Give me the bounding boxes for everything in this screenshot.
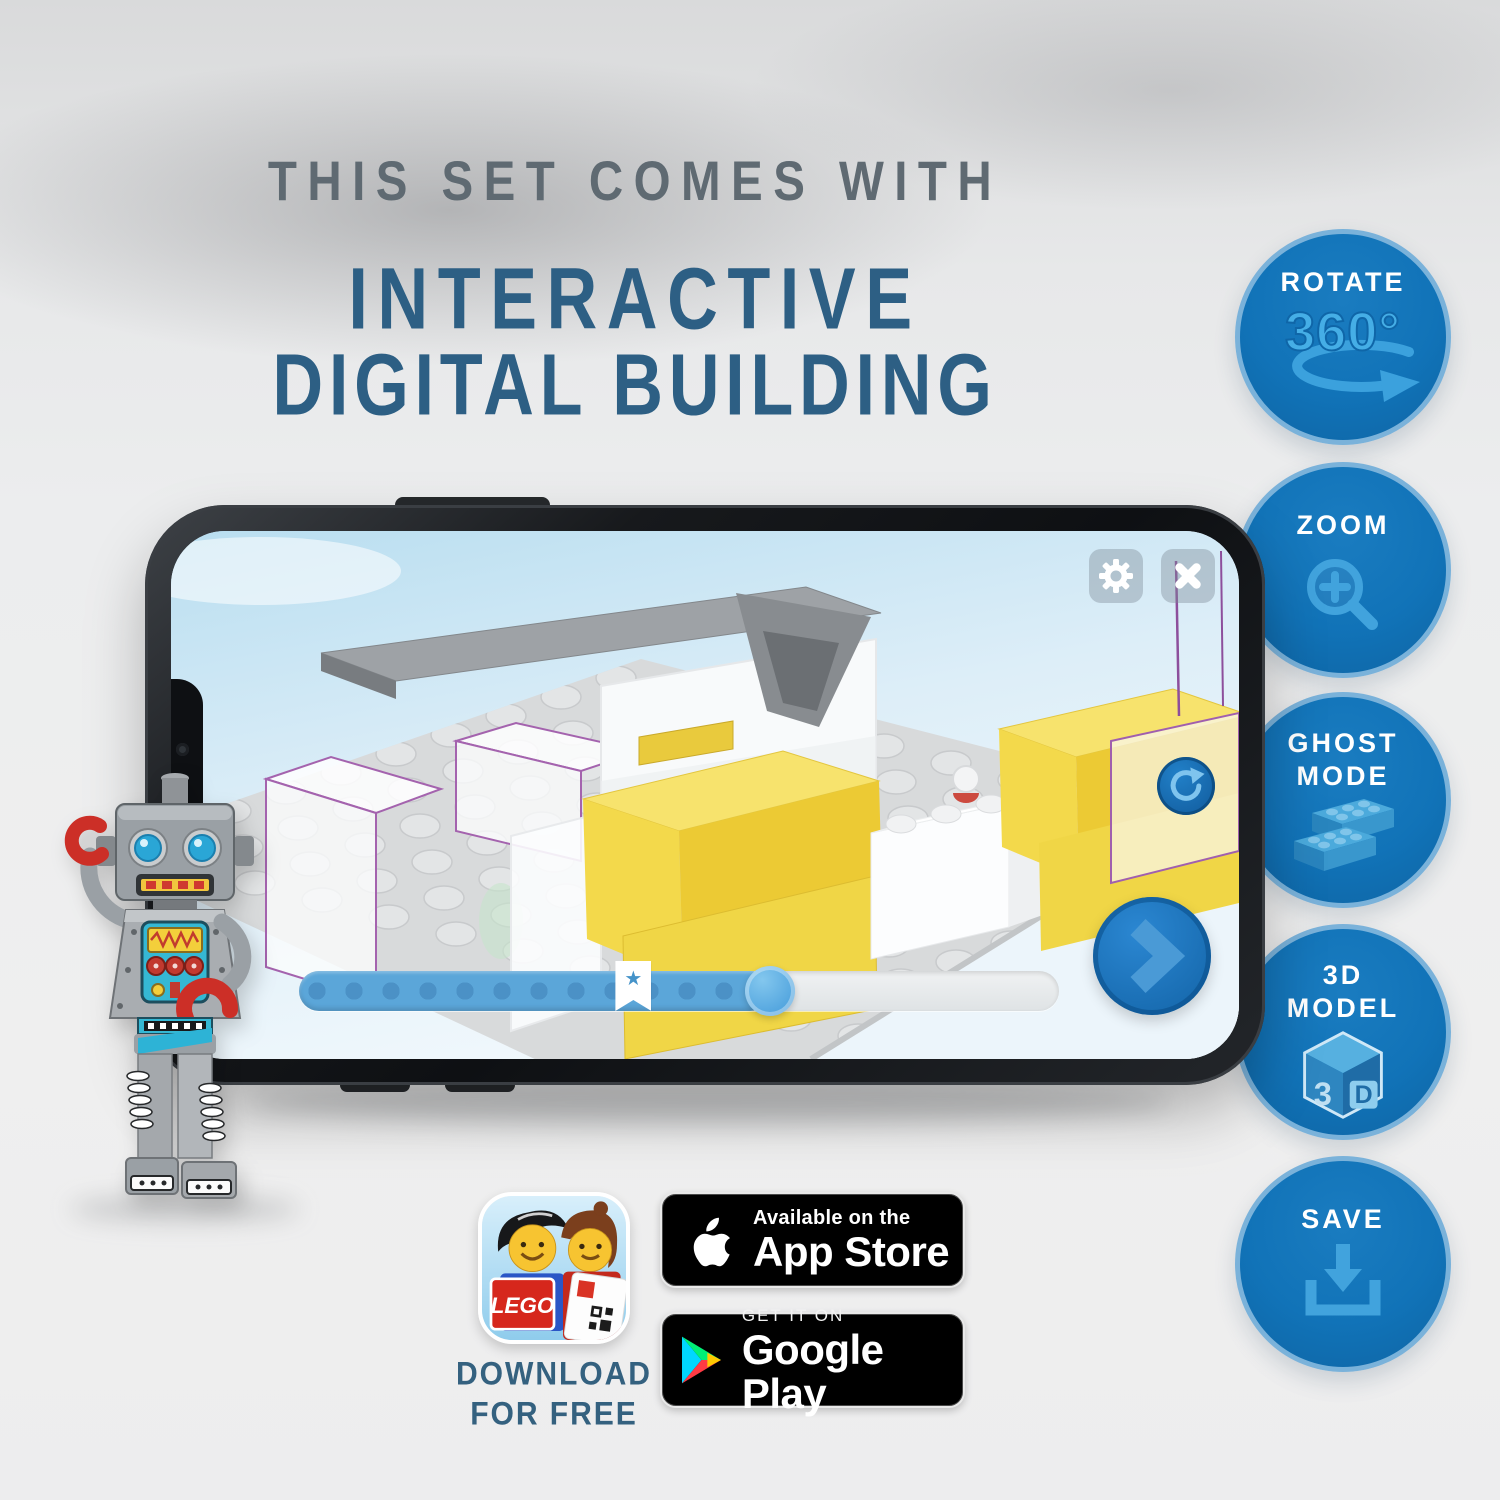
settings-button[interactable]: [1089, 549, 1143, 603]
lego-app-icon[interactable]: LEGO: [478, 1192, 630, 1344]
title-kicker: THIS SET COMES WITH: [32, 149, 1239, 214]
apple-logo-icon: [682, 1207, 736, 1273]
google-play-badge[interactable]: GET IT ON Google Play: [660, 1312, 965, 1408]
zoom-magnifier-icon: [1295, 550, 1391, 646]
build-progress-bar[interactable]: ★: [299, 971, 1059, 1011]
badge-rotate-label: ROTATE: [1240, 266, 1446, 299]
ghost-brick-icon: [1278, 797, 1408, 885]
google-play-tagline: GET IT ON: [742, 1304, 963, 1328]
download-line-1: DOWNLOAD: [432, 1354, 676, 1394]
download-cta: DOWNLOAD FOR FREE: [432, 1354, 676, 1434]
save-download-icon: [1297, 1242, 1389, 1320]
feature-badge-save: SAVE: [1235, 1156, 1451, 1372]
download-line-2: FOR FREE: [432, 1394, 676, 1434]
next-step-button[interactable]: [1093, 897, 1211, 1015]
chevron-right-icon: [1093, 897, 1211, 1015]
3d-cube-icon: 3 D: [1295, 1027, 1391, 1123]
close-x-icon: [1171, 559, 1205, 593]
badge-save-label: SAVE: [1240, 1203, 1446, 1236]
lego-app-icon-art: LEGO: [482, 1196, 626, 1340]
refresh-icon: [1166, 766, 1206, 806]
cube-d-text: D: [1355, 1081, 1373, 1109]
lego-logo-text: LEGO: [491, 1293, 555, 1318]
rotate-360-icon: 360°: [1240, 301, 1446, 363]
feature-badge-rotate: ROTATE 360°: [1235, 229, 1451, 445]
promo-poster: THIS SET COMES WITH INTERACTIVE DIGITAL …: [0, 0, 1500, 1500]
cube-3-text: 3: [1314, 1075, 1332, 1112]
google-play-name: Google Play: [742, 1328, 963, 1416]
phone-mockup: ★: [145, 505, 1265, 1085]
badge-3d-label-1: 3D: [1323, 960, 1364, 990]
badge-zoom-label: ZOOM: [1240, 509, 1446, 542]
progress-fill: [299, 971, 770, 1011]
front-camera: [176, 743, 189, 756]
robot-minifigure: [50, 770, 302, 1214]
reset-view-button[interactable]: [1157, 757, 1215, 815]
feature-badge-ghost-mode: GHOST MODE: [1235, 692, 1451, 908]
feature-badge-zoom: ZOOM: [1235, 462, 1451, 678]
badge-3d-label-2: MODEL: [1287, 993, 1400, 1023]
app-store-tagline: Available on the: [753, 1206, 949, 1230]
app-store-name: App Store: [753, 1230, 949, 1274]
app-store-badge[interactable]: Available on the App Store: [660, 1192, 965, 1288]
close-button[interactable]: [1161, 549, 1215, 603]
google-play-icon: [682, 1334, 725, 1386]
badge-ghost-label-1: GHOST: [1287, 728, 1398, 758]
progress-slider-handle[interactable]: [745, 966, 795, 1016]
feature-badge-3d-model: 3D MODEL 3 D: [1235, 924, 1451, 1140]
title-line-2: DIGITAL BUILDING: [32, 334, 1239, 434]
app-screen: ★: [171, 531, 1239, 1059]
gear-icon: [1099, 559, 1133, 593]
badge-ghost-label-2: MODE: [1297, 761, 1390, 791]
